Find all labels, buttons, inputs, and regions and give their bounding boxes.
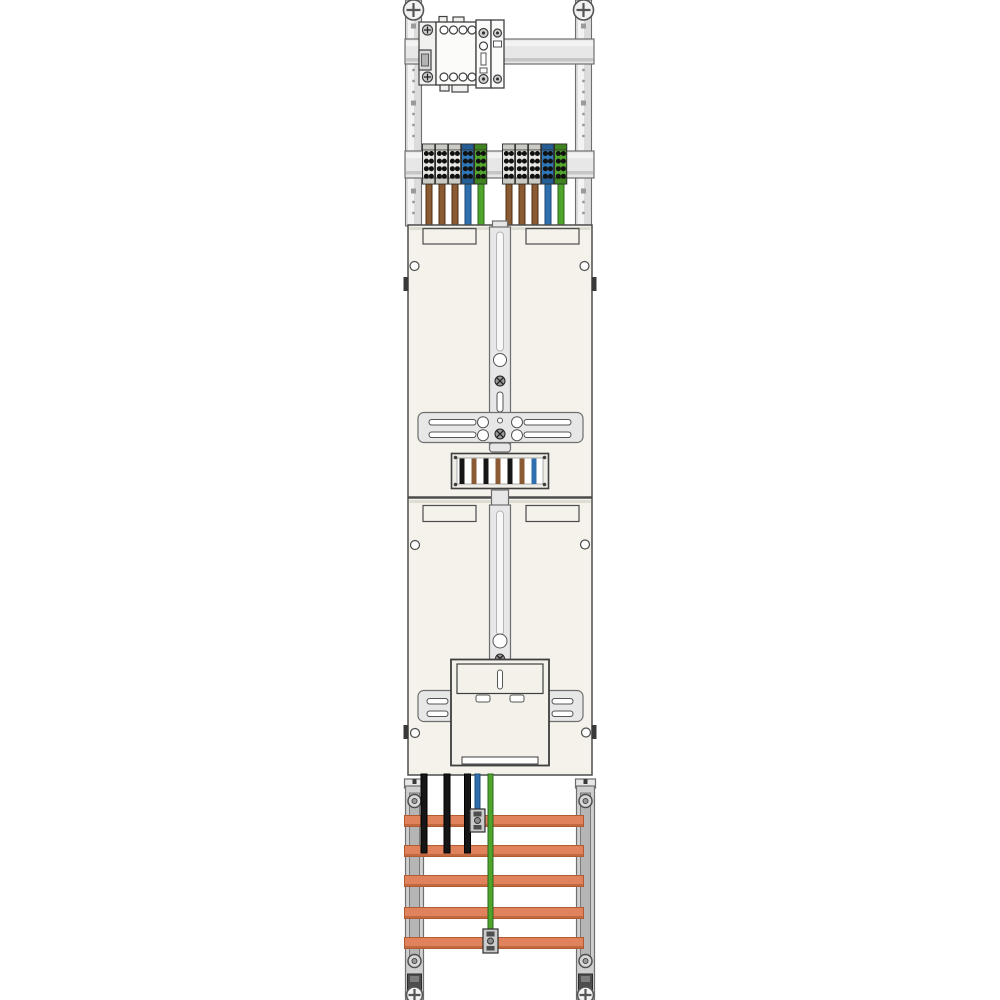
terminal-wire-hole [424,166,429,171]
green-feed-wire [478,184,484,227]
window-screw-icon [543,483,547,487]
rail-hole-square [411,101,416,106]
terminal-wire-hole [509,174,514,179]
phase-wire-1 [421,774,427,853]
side-clip [404,725,409,739]
side-clip [592,725,597,739]
terminal-wire-hole [424,151,429,156]
busbar-shadow-edge [405,854,583,856]
rail-rivet-dot [583,959,588,964]
end-connector-detail [581,976,590,982]
rail-hole-square [411,24,416,29]
window-screw-icon [543,456,547,460]
clamp-center-screw [488,938,494,944]
terminal-wire-hole [468,159,473,164]
device-foot [440,85,449,91]
terminal-wire-hole [556,151,561,156]
terminal-dot-icon [496,78,499,81]
rail-slot [497,392,503,412]
terminal-bottom-cap [462,178,474,184]
side-clip [404,277,409,291]
terminal-top-cap [529,144,541,150]
brown-window-wire [520,459,525,485]
terminal-wire-hole [463,174,468,179]
crossbar-slot [429,432,476,438]
rail-top-notch [584,779,588,784]
terminal-wire-hole [437,166,442,171]
label-slot [480,68,487,73]
rail-hole-square [581,24,586,29]
rail-hole-dot [412,201,415,204]
terminal-bottom-cap [555,178,567,184]
terminal-wire-hole [522,174,527,179]
crossbar-hole [478,430,489,441]
crossbar-slot [552,711,573,717]
busbar-shadow-edge [405,824,583,826]
terminal-dot-icon [482,31,485,34]
terminal-wire-hole [450,159,455,164]
terminal-wire-hole [437,151,442,156]
terminal-wire-hole [450,151,455,156]
terminal-top-cap [449,144,461,150]
brown-feed-wire [519,184,525,227]
terminal-wire-hole [522,151,527,156]
terminal-wire-hole [442,166,447,171]
rail-hole-dot [582,124,585,127]
crossbar-slot [427,711,448,717]
busbar-shadow-edge [405,916,583,918]
rail-rivet-dot [412,799,417,804]
crossbar-slot [524,420,571,426]
terminal-wire-hole [548,159,553,164]
terminal-wire-hole [504,159,509,164]
terminal-hole-icon [450,26,458,34]
terminal-wire-hole [442,159,447,164]
rail-hole-dot [582,69,585,72]
side-clip [592,277,597,291]
terminal-wire-hole [468,166,473,171]
terminal-wire-hole [450,166,455,171]
window-screw-icon [454,456,458,460]
rail-hole-dot [582,91,585,94]
rail-hole-dot [582,212,585,215]
terminal-wire-hole [543,159,548,164]
rail-hole-dot [582,113,585,116]
rail-hole-dot [412,113,415,116]
terminal-wire-hole [504,151,509,156]
terminal-bottom-cap [449,178,461,184]
earth-wire [488,774,493,948]
fixing-hole [411,541,420,550]
terminal-wire-hole [468,174,473,179]
terminal-wire-hole [535,174,540,179]
terminal-wire-hole [548,151,553,156]
terminal-dot-icon [482,77,485,80]
terminal-wire-hole [437,159,442,164]
terminal-wire-hole [509,159,514,164]
terminal-wire-hole [561,174,566,179]
terminal-bottom-cap [516,178,528,184]
terminal-wire-hole [535,151,540,156]
terminal-wire-hole [530,151,535,156]
brown-feed-wire [439,184,445,227]
green-feed-wire [558,184,564,227]
terminal-wire-hole [556,166,561,171]
terminal-wire-hole [468,151,473,156]
fixing-hole [411,729,420,738]
terminal-top-cap [475,144,487,150]
terminal-hole-icon [459,73,467,81]
rail-hole-dot [582,135,585,138]
terminal-wire-hole [561,151,566,156]
terminal-wire-hole [535,166,540,171]
terminal-wire-hole [517,166,522,171]
product-illustration [0,0,1000,1000]
rail-rivet-dot [412,959,417,964]
terminal-wire-hole [481,151,486,156]
terminal-wire-hole [481,159,486,164]
rail-groove [497,511,504,635]
meter-panel-lower [404,490,597,775]
crossbar-hole [478,417,489,428]
device-toggle-lever [422,54,429,66]
terminal-wire-hole [476,166,481,171]
terminal-wire-hole [548,166,553,171]
rail-hole [493,634,507,648]
black-window-wire [460,459,465,485]
end-connector-detail [410,976,419,982]
terminal-top-cap [436,144,448,150]
terminal-hole-icon [440,73,448,81]
rail-hole [494,354,507,367]
terminal-hole-icon [459,26,467,34]
crossbar-slot [524,432,571,438]
terminal-wire-hole [455,151,460,156]
terminal-wire-hole [442,174,447,179]
terminal-wire-hole [429,151,434,156]
cover-latch [510,695,524,702]
clamp-screw-top [487,932,495,937]
terminal-wire-hole [442,151,447,156]
window-screw-icon [454,483,458,487]
terminal-wire-hole [509,166,514,171]
fixing-hole [410,262,419,271]
terminal-wire-hole [437,174,442,179]
blue-feed-wire [545,184,551,227]
blue-feed-wire [465,184,471,227]
terminal-hole-icon [468,73,476,81]
rail-hole-dot [582,201,585,204]
terminal-wire-hole [450,174,455,179]
crossbar-hole [512,430,523,441]
terminal-top-cap [542,144,554,150]
device-foot [452,85,468,92]
terminal-wire-hole [535,159,540,164]
terminal-wire-hole [455,159,460,164]
fixing-hole [581,540,590,549]
terminal-wire-hole [522,159,527,164]
terminal-wire-hole [481,174,486,179]
rail-hole-square [411,189,416,194]
terminal-wire-hole [556,174,561,179]
terminal-top-cap [423,144,435,150]
fixing-hole [582,728,591,737]
cover-bottom-slot [462,757,538,764]
terminal-wire-hole [455,166,460,171]
terminal-wire-hole [463,166,468,171]
rail-hole-dot [582,80,585,83]
terminal-wire-hole [476,174,481,179]
rail-top-notch [413,779,417,784]
crossbar-pilot-hole [498,418,503,423]
rail-hole-dot [412,91,415,94]
terminal-wire-hole [517,174,522,179]
clamp-screw-bottom [474,825,482,830]
cover-latch [476,695,490,702]
terminal-bottom-cap [529,178,541,184]
terminal-wire-hole [476,151,481,156]
rail-hole-square [581,101,586,106]
terminal-wire-hole [481,166,486,171]
terminal-wire-hole [530,174,535,179]
terminal-hole-icon [468,26,476,34]
brown-feed-wire [532,184,538,227]
terminal-wire-hole [429,174,434,179]
rail-hole-square [581,189,586,194]
terminal-wire-hole [463,151,468,156]
main-switch-device [419,17,504,93]
terminal-top-cap [462,144,474,150]
terminal-hole-icon [440,26,448,34]
terminal-wire-hole [530,159,535,164]
terminal-top-cap [516,144,528,150]
bottom-feed-wires [421,774,493,948]
terminal-wire-hole [561,159,566,164]
crossbar-hole [512,417,523,428]
terminal-wire-hole [543,174,548,179]
rail-hole-dot [412,135,415,138]
fixing-hole [580,262,589,271]
phase-wire-2 [444,774,450,853]
terminal-wire-hole [424,174,429,179]
black-window-wire [508,459,513,485]
terminal-wire-hole [543,166,548,171]
rail-rivet-dot [583,799,588,804]
rail-hole-dot [412,124,415,127]
terminal-bottom-cap [475,178,487,184]
clamp-screw-bottom [487,946,495,951]
crossbar-slot [429,420,476,426]
rail-foot [490,443,511,452]
terminal-wire-hole [517,159,522,164]
terminal-wire-hole [476,159,481,164]
brown-window-wire [472,459,477,485]
terminal-wire-hole [556,159,561,164]
meter-panel-illustration [0,0,1000,1000]
blue-window-wire [532,459,537,485]
terminal-bottom-cap [542,178,554,184]
terminal-wire-hole [429,166,434,171]
terminal-wire-hole [463,159,468,164]
clamp-center-screw [475,818,481,824]
terminal-bottom-cap [436,178,448,184]
busbar-shadow-edge [405,884,583,886]
indicator-window-icon [480,42,488,50]
terminal-bottom-cap [423,178,435,184]
terminal-wire-hole [548,174,553,179]
terminal-wire-hole [522,166,527,171]
crossbar-slot [427,699,448,705]
rail-junction-tab [492,490,509,506]
terminal-bottom-cap [503,178,515,184]
black-window-wire [484,459,489,485]
terminal-top-cap [555,144,567,150]
terminal-wire-hole [424,159,429,164]
label-slot [494,41,502,47]
terminal-wire-hole [561,166,566,171]
bottom-right-busbar-rail [576,779,596,1000]
terminal-wire-hole [517,151,522,156]
terminal-wire-hole [530,166,535,171]
rail-hole-dot [412,69,415,72]
meter-panel-upper [404,221,597,497]
brown-window-wire [496,459,501,485]
label-slot [481,53,486,65]
terminal-wire-hole [543,151,548,156]
rail-hole-dot [412,212,415,215]
rail-hole-dot [412,80,415,83]
brown-feed-wire [452,184,458,227]
terminal-top-cap [503,144,515,150]
rail-groove [497,232,504,351]
rail-slot [498,670,503,689]
clamp-screw-top [474,812,482,817]
terminal-dot-icon [496,32,499,35]
crossbar-slot [552,699,573,705]
terminal-wire-hole [509,151,514,156]
brown-feed-wire [426,184,432,227]
terminal-wire-hole [429,159,434,164]
terminal-hole-icon [450,73,458,81]
terminal-wire-hole [504,166,509,171]
terminal-wire-hole [504,174,509,179]
terminal-wire-hole [455,174,460,179]
